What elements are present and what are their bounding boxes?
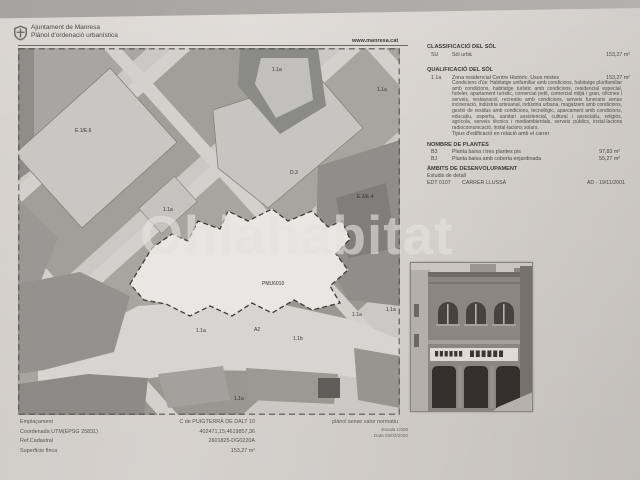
qualificacio-conditions: Condicions d'ús: Habitatge unifamiliar a… <box>452 81 622 131</box>
zoning-map-drawing <box>18 48 400 415</box>
map-parcel-label: PMU6010 <box>262 281 284 287</box>
detail-row: Ref.Cadastral 2601825-DG0220A <box>20 438 260 448</box>
map-zone-label: E.1/E.6 <box>75 128 91 134</box>
map-disclaimer: plànol sense valor normatiu Escala 1/500… <box>318 419 412 438</box>
plantes-row-code: BJ <box>431 156 437 162</box>
detail-row: Coordenada UTM(EPSG 25831) 402471,15;461… <box>20 429 260 439</box>
header-divider <box>18 45 408 46</box>
qualificacio-code: 1.1a <box>431 75 441 81</box>
plantes-row-desc: Planta baixa amb coberta enjardinada <box>452 156 541 162</box>
map-zone-label: D.3 <box>290 170 298 176</box>
ambits-subtitle: Estudis de detall <box>427 173 466 179</box>
scale-text: Escala 1/500 <box>318 427 412 432</box>
section-plantes-title: NOMBRE DE PLANTES <box>427 142 489 148</box>
map-zone-label: 1.1a <box>352 312 362 318</box>
date-text: Data 03/03/2020 <box>318 433 412 438</box>
classificacio-desc: Sòl urbà <box>452 52 472 58</box>
detail-value: 2601825-DG0220A <box>130 438 255 444</box>
map-zone-label: 1.1a <box>234 396 244 402</box>
header-website: www.manresa.cat <box>352 38 398 44</box>
map-zone-label: 1.1a <box>377 87 387 93</box>
map-zone-label: A2 <box>254 327 260 333</box>
parcel-details: Emplaçament C de PUIGTERRÀ DE DALT 10 Co… <box>20 419 260 457</box>
section-qualificacio-title: QUALIFICACIÓ DEL SÒL <box>427 67 493 73</box>
plantes-row-area: 97,83 m² <box>560 149 620 155</box>
map-zone-label: 1.1a <box>272 67 282 73</box>
map-zone-label: 1.1a <box>196 328 206 334</box>
scan-backdrop <box>0 0 640 20</box>
map-zone-label: 1.1b <box>293 336 303 342</box>
classificacio-area: 153,27 m² <box>570 52 630 58</box>
facade-photo <box>410 262 533 412</box>
plantes-row-desc: Planta baixa i tres plantes pis <box>452 149 521 155</box>
plantes-row-area: 55,27 m² <box>560 156 620 162</box>
ambits-code: EDT 0107 <box>427 180 451 186</box>
document-paper: Ajuntament de Manresa Plànol d'ordenació… <box>0 0 640 480</box>
map-zone-label: 1.1a <box>386 307 396 313</box>
plantes-row-code: B3 <box>431 149 437 155</box>
detail-label: Superfície finca <box>20 448 57 454</box>
detail-label: Emplaçament <box>20 419 53 425</box>
detail-value: C de PUIGTERRÀ DE DALT 10 <box>130 419 255 425</box>
map-zone-label: E.3/E.4 <box>357 194 373 200</box>
map-zone-label: 1.1a <box>163 207 173 213</box>
detail-value: 153,27 m² <box>130 448 255 454</box>
zoning-map: 1.1a 1.1a E.1/E.6 D.3 E.3/E.4 1.1a PMU60… <box>18 48 400 415</box>
detail-label: Ref.Cadastral <box>20 438 53 444</box>
section-ambits-title: ÀMBITS DE DESENVOLUPAMENT <box>427 166 517 172</box>
ambits-name: CARRER LLUSSÀ <box>462 180 506 186</box>
disclaimer-text: plànol sense valor normatiu <box>318 419 412 425</box>
header-organization: Ajuntament de Manresa <box>31 24 100 31</box>
detail-row: Emplaçament C de PUIGTERRÀ DE DALT 10 <box>20 419 260 429</box>
qualificacio-tipus: Tipus d'edificació en relació amb el car… <box>452 131 549 137</box>
ambits-date: AD - 19/11/2001 <box>565 180 625 186</box>
section-classificacio-title: CLASSIFICACIÓ DEL SÒL <box>427 44 496 50</box>
detail-label: Coordenada UTM(EPSG 25831) <box>20 429 98 435</box>
manresa-logo-icon <box>13 25 28 46</box>
detail-row: Superfície finca 153,27 m² <box>20 448 260 458</box>
page-title: Plànol d'ordenació urbanística <box>31 32 118 39</box>
classificacio-code: SU <box>431 52 438 58</box>
detail-value: 402471,15;4619857,36 <box>130 429 255 435</box>
